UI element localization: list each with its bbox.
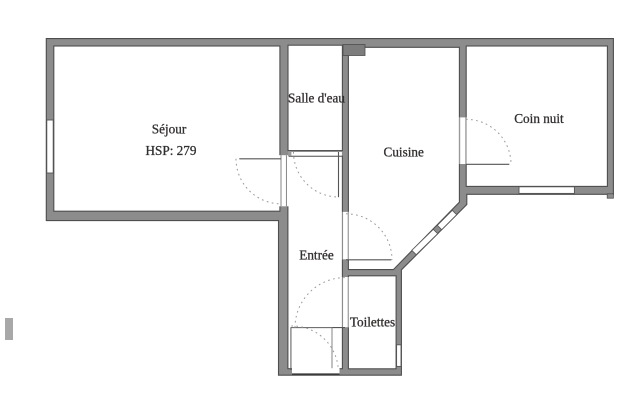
svg-text:HSP: 279: HSP: 279: [146, 143, 197, 158]
svg-text:Coin nuit: Coin nuit: [514, 111, 564, 126]
svg-text:Toilettes: Toilettes: [350, 315, 395, 330]
svg-text:Cuisine: Cuisine: [384, 145, 424, 160]
svg-text:Entrée: Entrée: [299, 248, 334, 263]
svg-text:Séjour: Séjour: [152, 122, 187, 137]
svg-text:Salle d'eau: Salle d'eau: [288, 91, 345, 106]
